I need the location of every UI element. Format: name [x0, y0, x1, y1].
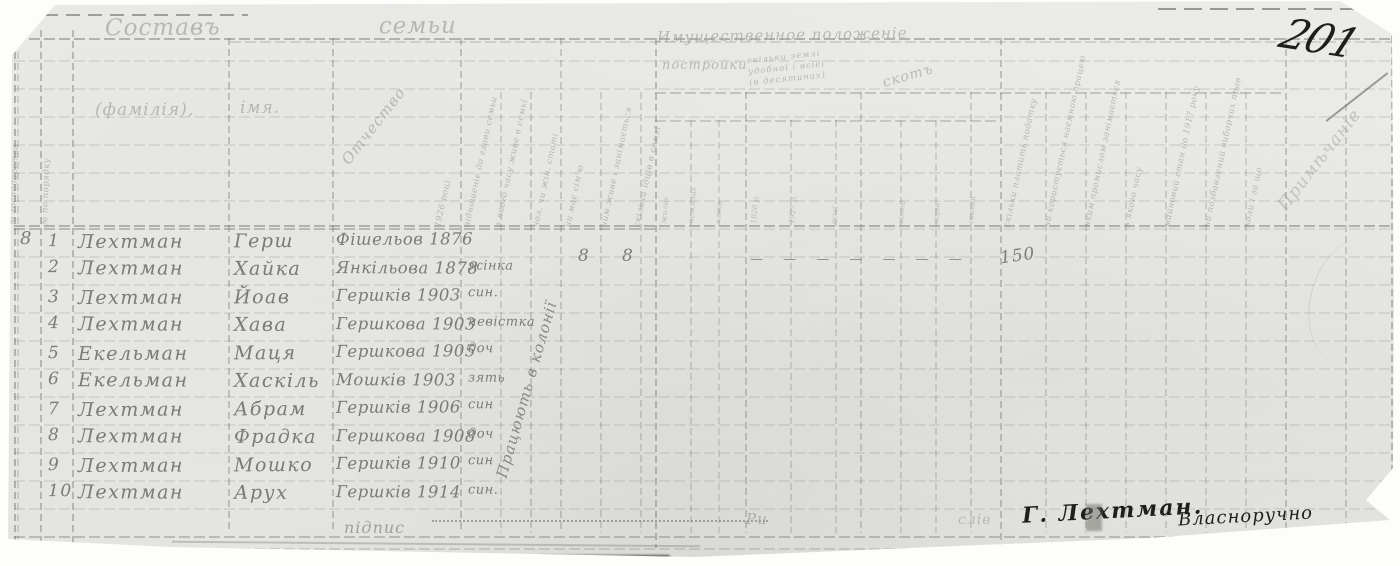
section-title-property: Имущественное положеніе — [657, 24, 908, 46]
name-cell: Хава — [234, 314, 287, 336]
footer-pencil-word: слів — [958, 512, 991, 528]
grid-line-vertical — [690, 120, 692, 533]
left-edge-tick-3 — [2, 214, 8, 222]
row-number: 1 — [48, 231, 60, 251]
row-number: 9 — [48, 455, 60, 475]
land-sub-1927: 1927 р. — [787, 195, 798, 224]
row2-dash-marks: — — — — — — — — [750, 252, 963, 267]
column-header-property-before-1917: майновий стан до 1917 року — [1162, 85, 1202, 228]
table-row: 10 Лехтман Арух Гершків 1914 син. — [0, 481, 620, 511]
grid-line-horizontal — [14, 172, 1391, 174]
grid-line-horizontal — [655, 120, 1000, 122]
grid-line-vertical — [1391, 14, 1393, 528]
surname-cell: Екельман — [78, 343, 189, 365]
surname-cell: Лехтман — [78, 481, 184, 503]
subsection-livestock: скотъ — [881, 61, 936, 91]
surname-cell: Лехтман — [78, 455, 184, 477]
relation-cell: жінка — [468, 259, 514, 274]
row-number: 2 — [48, 257, 60, 277]
table-row: 9 Лехтман Мошко Гершків 1910 син — [0, 453, 620, 484]
land-sub-total: всієї — [829, 206, 839, 224]
column-header-eaters-count: скільки їдців в семьї — [632, 126, 663, 228]
grid-line-vertical — [835, 120, 837, 533]
grid-line-vertical — [640, 92, 642, 533]
buildings-sub-nondwelling: нежилих — [686, 187, 698, 224]
name-cell: Хаскіль — [234, 370, 320, 392]
surname-cell: Лехтман — [78, 399, 184, 421]
table-row: 4 Лехтман Хава Гершкова 1903 невістка — [0, 313, 620, 343]
signature-dotted-line — [432, 520, 768, 522]
relation-cell: доч — [468, 341, 494, 356]
row2-value-150: 150 — [999, 244, 1037, 269]
column-header-household-number: № господарства — [8, 143, 21, 225]
grid-line-horizontal — [14, 225, 1391, 227]
bottom-center-smudge — [538, 555, 670, 564]
footer-signature-label: підпис — [344, 518, 405, 537]
name-cell: Йоав — [234, 286, 291, 308]
family-count-1: 8 — [578, 246, 590, 266]
grid-line-vertical — [1165, 92, 1167, 533]
patronymic-year-cell: Янкільова 1878 — [336, 258, 479, 277]
row-number: 3 — [48, 287, 60, 307]
name-cell: Мошко — [234, 454, 313, 476]
column-header-tax: скільки платить податку — [1002, 97, 1039, 228]
subsection-buildings: постройки — [662, 58, 747, 73]
table-row: 1 Лехтман Герш Фішельов 1876 — [0, 229, 620, 260]
column-header-has-family: чи має сім'ю — [563, 164, 586, 228]
relation-cell: зять — [468, 371, 505, 386]
left-edge-tick-1 — [0, 33, 11, 45]
grid-line-vertical — [1285, 38, 1287, 548]
grid-line-vertical — [1125, 92, 1127, 533]
grid-line-vertical — [718, 120, 720, 533]
patronymic-year-cell: Гершків 1914 — [336, 482, 461, 501]
livestock-sub-pigs: свиней — [966, 196, 977, 224]
grid-line-vertical — [745, 92, 747, 533]
column-header-when-and-why: коли і за що — [1242, 166, 1265, 228]
relation-cell: доч — [468, 427, 494, 442]
patronymic-year-cell: Фішельов 1876 — [336, 229, 473, 249]
grid-line-horizontal — [14, 536, 1391, 538]
page-number: 201 — [1273, 9, 1366, 67]
column-header-relation-to-head: відношеніе до глави семьи — [462, 95, 500, 228]
row-number: 8 — [48, 425, 60, 445]
row-number: 5 — [48, 343, 60, 363]
column-header-sex: чол. чи жін. статі — [531, 132, 561, 228]
name-cell: Фрадка — [234, 426, 317, 448]
surname-cell: Лехтман — [78, 257, 184, 279]
table-row: 8 Лехтман Фрадка Гершкова 1908 доч — [0, 425, 620, 455]
scan-edge-artifact-top-right — [1158, 8, 1396, 10]
signature-name: Г. Лехтман. — [1021, 493, 1203, 528]
column-header-voting-rights: чи позбавлений виборчих прав — [1202, 76, 1244, 228]
column-header-since-when: з якого часу — [1122, 166, 1145, 228]
grid-line-vertical — [1205, 92, 1207, 533]
row-number: 10 — [48, 481, 73, 501]
patronymic-year-cell: Мошків 1903 — [336, 370, 456, 389]
grid-line-vertical — [935, 120, 937, 533]
buildings-sub-barns: хлівів — [713, 201, 724, 224]
relation-cell: син. — [468, 483, 498, 498]
name-cell: Хайка — [234, 258, 301, 280]
row-number: 6 — [48, 369, 60, 389]
column-header-occupation: чим живе і занімається — [599, 106, 634, 228]
subsection-land: скільки землі удобної і всієї (в десятин… — [746, 48, 831, 89]
grid-line-horizontal — [14, 548, 1000, 550]
relation-cell: син. — [468, 285, 498, 300]
corner-pen-mark — [12, 4, 38, 11]
relation-cell: невістка — [468, 315, 535, 330]
footer-mark: Ри — [746, 510, 768, 528]
surname-cell: Лехтман — [78, 287, 184, 309]
grid-line-vertical — [900, 120, 902, 533]
grid-line-vertical — [790, 120, 792, 533]
grid-line-vertical — [970, 92, 972, 533]
bottom-edge-line — [172, 541, 700, 548]
grid-line-vertical — [1085, 92, 1087, 533]
grid-line-horizontal — [14, 200, 1391, 202]
paper-sheet: Составъ семьи Имущественное положеніе 20… — [0, 0, 1400, 566]
patronymic-year-cell: Гершкова 1905 — [336, 341, 476, 361]
grid-line-horizontal — [14, 228, 1391, 230]
family-count-2: 8 — [622, 246, 634, 266]
relation-cell: син — [468, 397, 494, 412]
name-cell: Маця — [234, 342, 297, 364]
surname-cell: Екельман — [78, 369, 189, 391]
row-number: 4 — [48, 313, 60, 333]
remarks-header: Примѣчаніе — [1274, 105, 1366, 214]
row-number: 7 — [48, 399, 60, 419]
surname-cell: Лехтман — [78, 231, 184, 253]
grid-line-vertical — [1045, 92, 1047, 533]
patronymic-year-cell: Гершків 1906 — [336, 397, 461, 417]
grid-line-vertical — [1245, 92, 1247, 533]
left-edge-tick-2 — [0, 126, 8, 139]
name-cell: Герш — [234, 230, 294, 252]
column-header-year-1926: 1926 році — [433, 179, 453, 228]
section-title-family: Составъ семьи — [105, 13, 457, 41]
paper-stain-arc — [1296, 230, 1400, 375]
patronymic-year-cell: Гершків 1910 — [336, 453, 461, 473]
table-row: 3 Лехтман Йоав Гершків 1903 син. — [0, 285, 620, 316]
patronymic-year-cell: Гершків 1903 — [336, 285, 461, 305]
column-header-surname: (фамілія), — [95, 100, 194, 120]
patronymic-year-cell: Гершкова 1908 — [336, 426, 476, 445]
livestock-sub-cows: корів — [931, 203, 942, 224]
surname-cell: Лехтман — [78, 425, 184, 447]
livestock-sub-horses: коней — [896, 200, 907, 224]
column-header-trade: яким промислом занімається — [1082, 79, 1123, 228]
grid-line-vertical — [860, 92, 862, 533]
relation-cell: син — [468, 453, 494, 468]
column-header-name: імя. — [240, 98, 280, 118]
table-row: 2 Лехтман Хайка Янкільова 1878 жінка — [0, 257, 620, 287]
grid-line-vertical — [655, 38, 657, 548]
column-header-patronymic: Отчество — [338, 84, 410, 168]
grid-line-vertical — [1000, 38, 1002, 548]
name-cell: Арух — [234, 482, 288, 504]
buildings-sub-dwelling: жилих — [659, 196, 670, 224]
column-header-order-number: № по порядку — [40, 158, 52, 225]
patronymic-year-cell: Гершкова 1903 — [336, 314, 476, 333]
column-header-living-since: з якого часу живе в семьї — [493, 99, 530, 228]
column-header-hired-labor: чи користується наємною працею — [1042, 54, 1088, 228]
surname-cell: Лехтман — [78, 313, 184, 335]
scanned-document: Составъ семьи Имущественное положеніе 20… — [0, 0, 1400, 566]
grid-line-horizontal — [14, 88, 1391, 90]
land-sub-1926: 1926 р. — [749, 195, 760, 224]
name-cell: Абрам — [234, 398, 307, 420]
